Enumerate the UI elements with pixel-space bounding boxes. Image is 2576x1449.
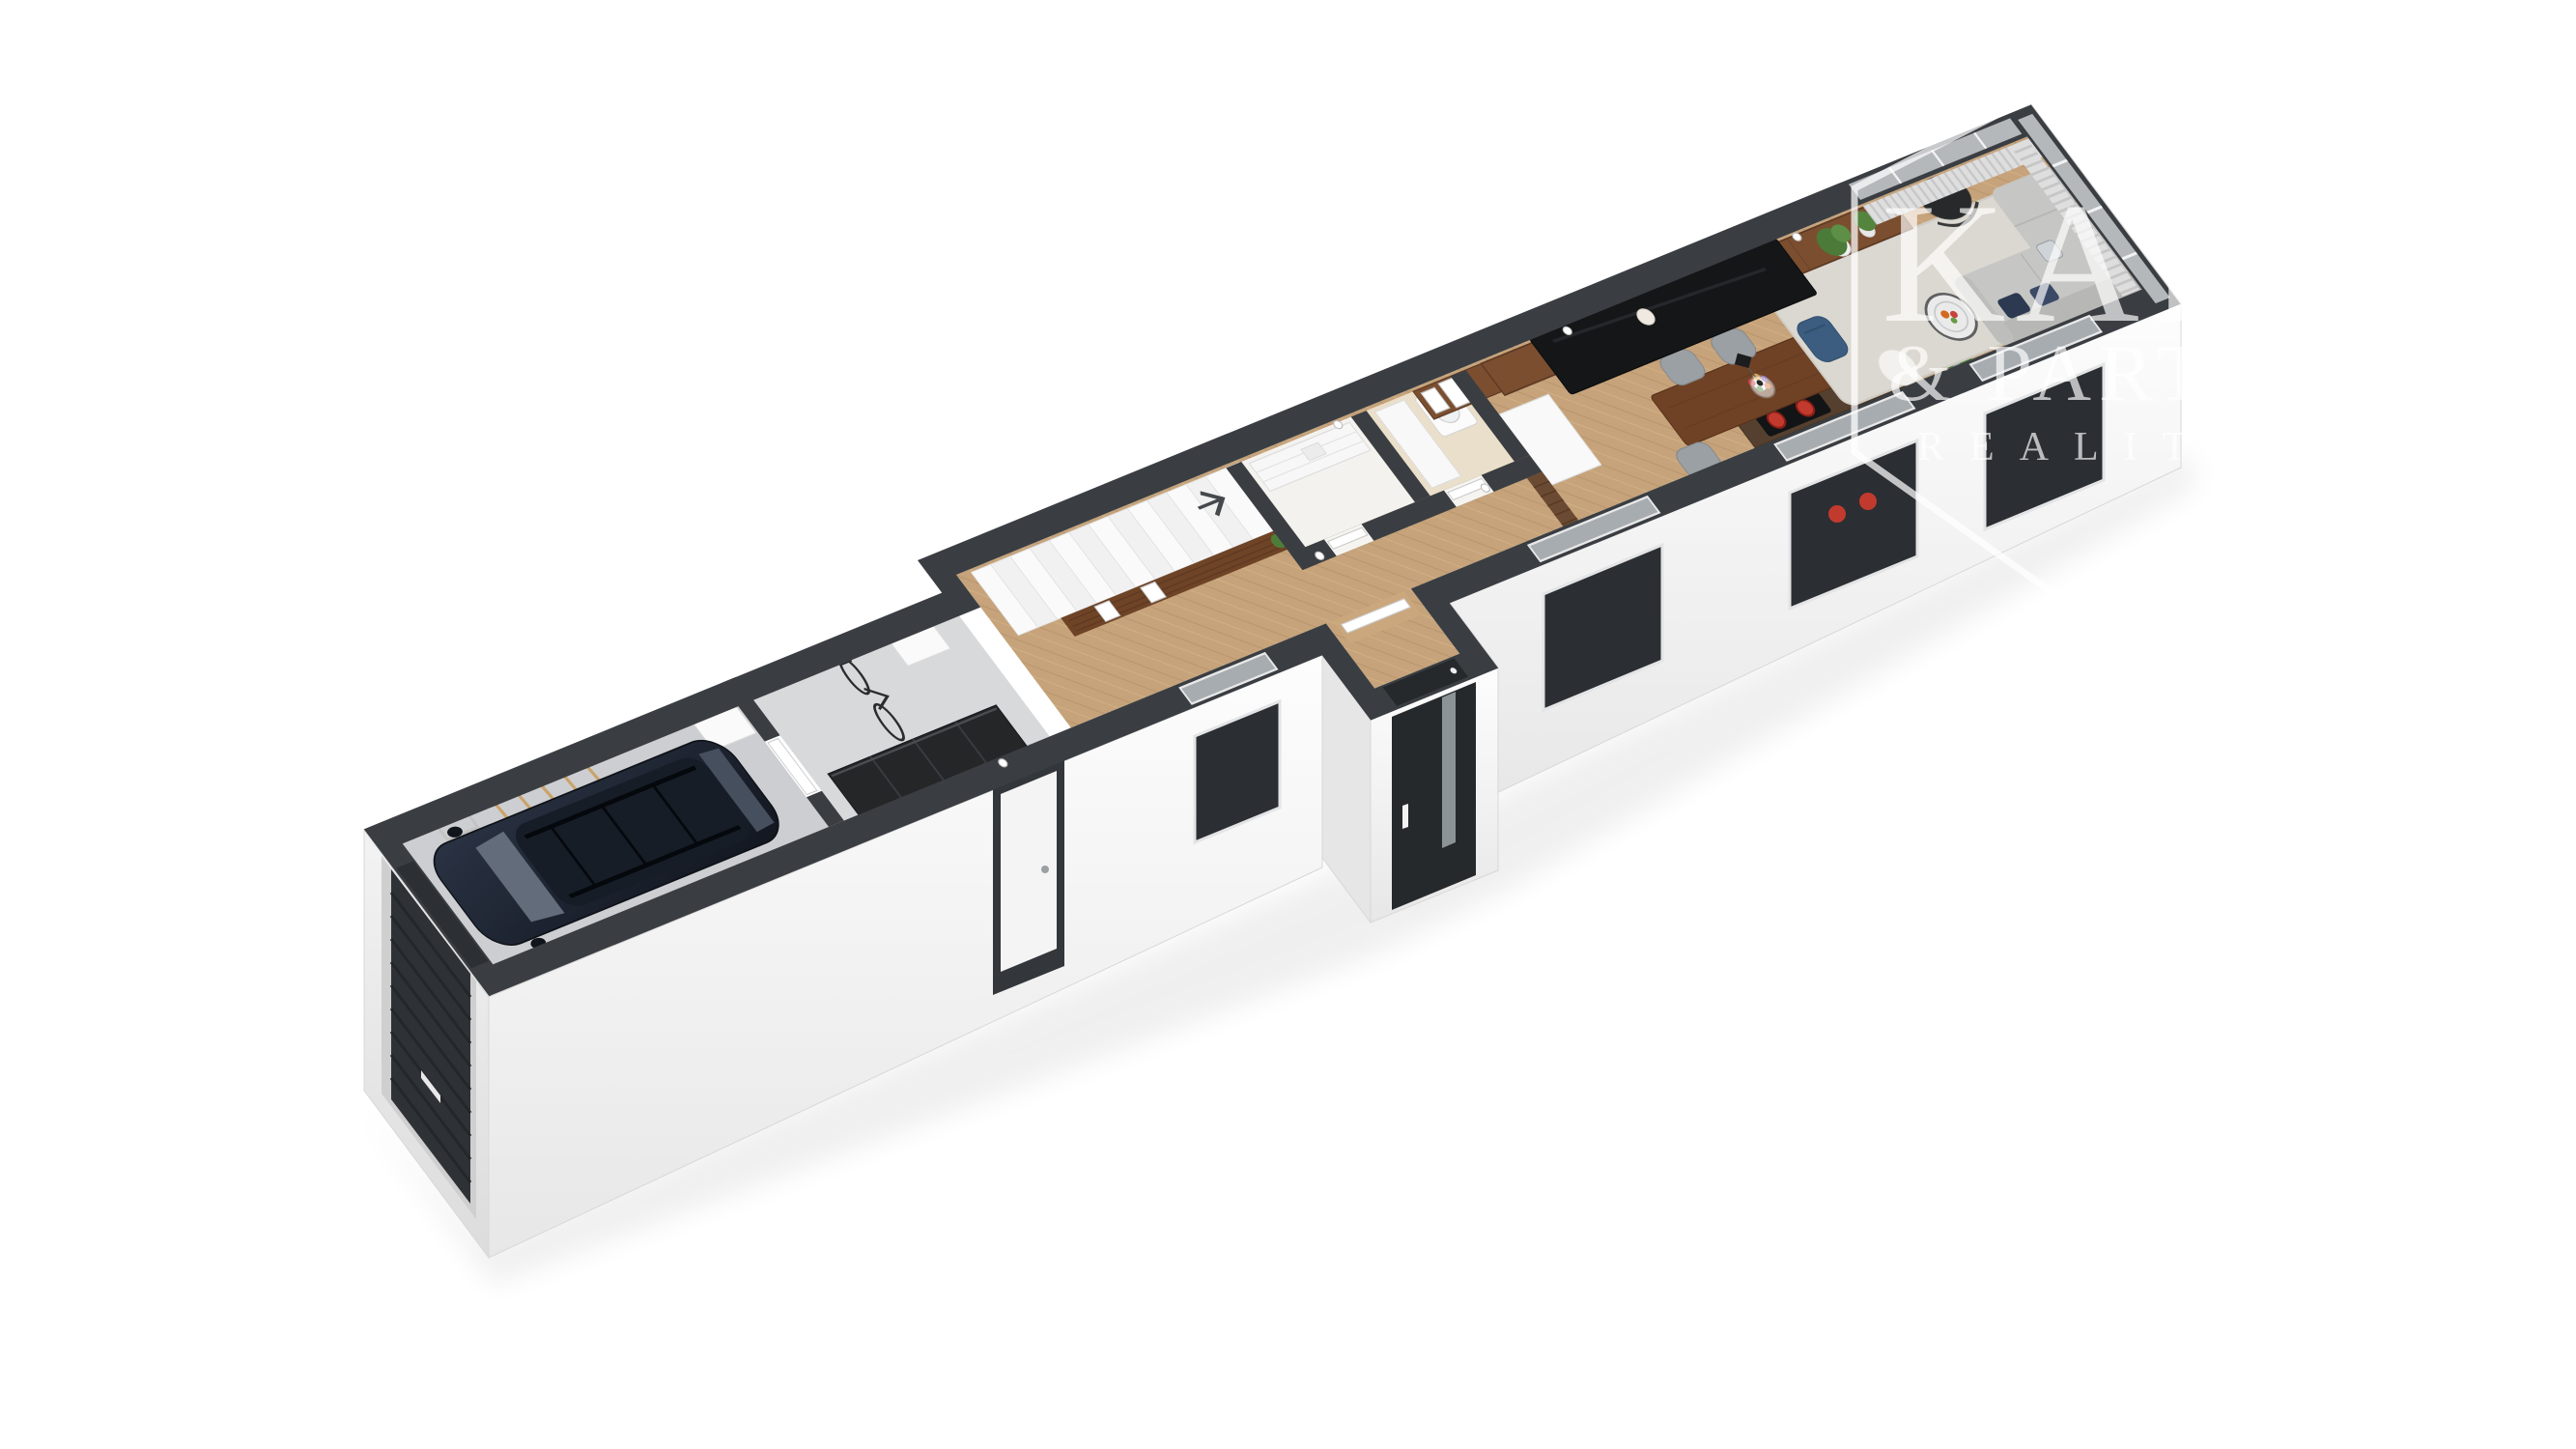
front-door-frame — [1392, 682, 1476, 910]
front-door-glass — [1442, 692, 1456, 848]
watermark-line2: & PART — [1888, 328, 2213, 418]
utility-door-handle — [1041, 866, 1049, 873]
front-door-handle — [1402, 804, 1408, 829]
cooktop-burner-through-window — [1828, 505, 1846, 523]
floorplan-svg: KAR & PART REALITN — [0, 0, 2576, 1449]
cooktop-burner-through-window — [1859, 493, 1877, 510]
watermark-line3: REALITN — [1917, 425, 2267, 469]
floorplan-render: KAR & PART REALITN — [0, 0, 2576, 1449]
